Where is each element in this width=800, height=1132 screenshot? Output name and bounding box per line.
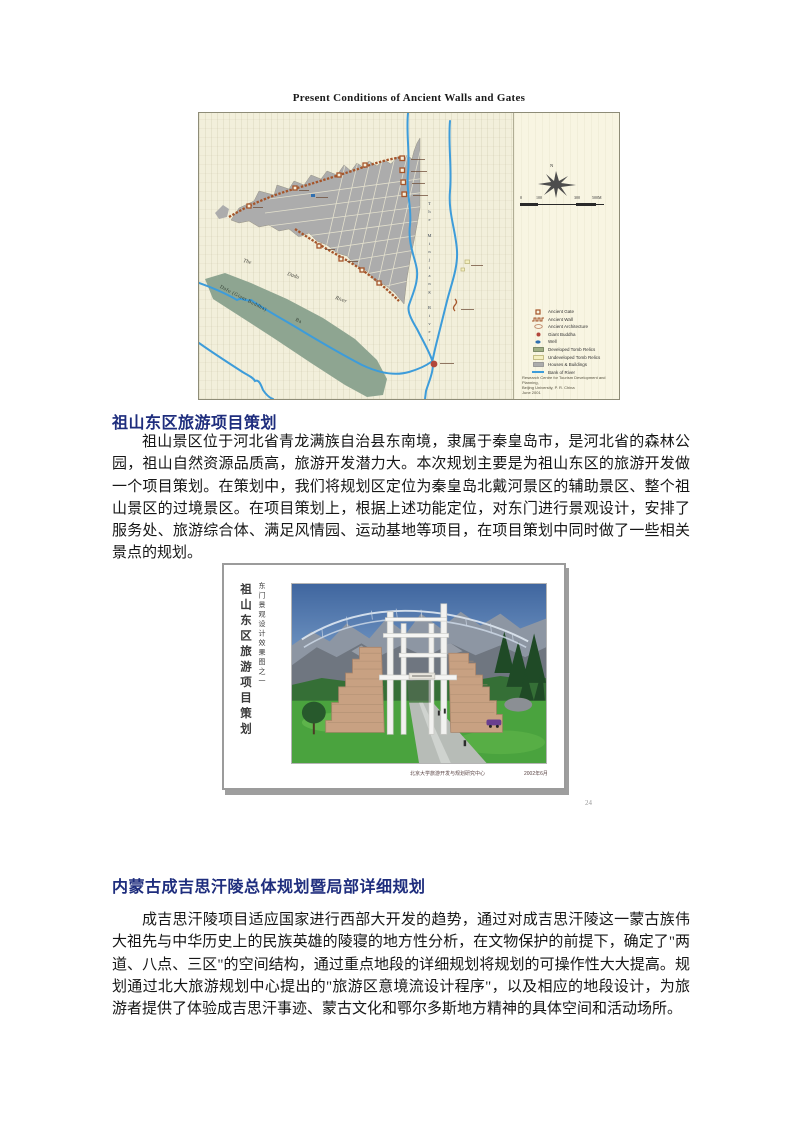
legend-item: Ancient Wall — [532, 317, 618, 322]
buddha-icon — [532, 331, 544, 337]
gate-opening — [407, 680, 431, 703]
map-legend-panel: N 0 100 300 500M Ancient Gat — [513, 113, 619, 399]
scale-bar — [520, 203, 604, 206]
slide-caption: 北京大学旅游开发与规划研究中心 — [410, 770, 485, 777]
tiny-label-mark — [411, 171, 427, 172]
map-drawing — [199, 113, 513, 399]
tiny-label-mark — [440, 363, 454, 364]
slide-side-title-small: 东门景观设计效果图之一 — [257, 582, 267, 687]
developed-tomb-swatch — [532, 346, 544, 352]
slide-caption-date: 2002年6月 — [524, 770, 548, 777]
map-main-area: The Minjiang River The Dadu River Dafo (… — [199, 113, 513, 399]
architecture-icon — [532, 324, 544, 330]
legend-item: Developed Tomb Relics — [532, 347, 618, 352]
scale-bar-ticks: 0 100 300 500M — [520, 195, 606, 201]
slide-page-number: 24 — [585, 799, 592, 807]
giant-buddha-marker — [431, 361, 438, 368]
minjiang-river-label: The Minjiang River — [427, 201, 432, 345]
tiny-label-mark — [325, 249, 335, 250]
gate-rendering-photo — [291, 583, 547, 764]
buildings-swatch — [532, 362, 544, 368]
well-icon — [532, 339, 544, 345]
map-figure-title: Present Conditions of Ancient Walls and … — [198, 92, 620, 104]
document-page: Present Conditions of Ancient Walls and … — [0, 0, 800, 1132]
map-credit: Research Centre for Tourism Development … — [522, 375, 614, 395]
rocks — [504, 698, 532, 712]
legend-item: Giant Buddha — [532, 332, 618, 337]
tiny-label-mark — [413, 195, 428, 196]
tiny-label-mark — [347, 261, 358, 262]
legend-item: Well — [532, 339, 618, 344]
map-legend: Ancient Gate Ancient Wall Ancient Archit… — [532, 309, 618, 375]
tiny-label-mark — [316, 197, 328, 198]
legend-item: Bank of River — [532, 370, 618, 375]
tiny-label-mark — [411, 159, 425, 160]
map-figure: The Minjiang River The Dadu River Dafo (… — [198, 112, 620, 400]
section2-heading: 内蒙古成吉思汗陵总体规划暨局部详细规划 — [112, 873, 690, 897]
legend-item: Undeveloped Tomb Relics — [532, 355, 618, 360]
tiny-label-mark — [299, 190, 309, 191]
tiny-label-mark — [253, 207, 263, 208]
gate-icon — [532, 309, 544, 315]
tiny-label-mark — [412, 183, 425, 184]
legend-item: Ancient Architecture — [532, 324, 618, 329]
compass-north-label: N — [550, 163, 553, 168]
section2-paragraph: 成吉思汗陵项目适应国家进行西部大开发的趋势，通过对成吉思汗陵这一蒙古族伟大祖先与… — [112, 909, 690, 1020]
well-marker — [311, 194, 315, 197]
section1-paragraph: 祖山景区位于河北省青龙满族自治县东南境，隶属于秦皇岛市，是河北省的森林公园，祖山… — [112, 431, 690, 565]
section1-heading: 祖山东区旅游项目策划 — [112, 409, 690, 433]
slide-side-title-large: 祖山东区旅游项目策划 — [237, 583, 253, 738]
tiny-label-mark — [471, 265, 483, 266]
undeveloped-tomb-swatch — [532, 354, 544, 360]
legend-item: Houses & Buildings — [532, 362, 618, 367]
wall-icon — [532, 316, 544, 322]
tiny-label-mark — [461, 309, 474, 310]
slide-figure: 祖山东区旅游项目策划 东门景观设计效果图之一 — [222, 563, 566, 790]
legend-item: Ancient Gate — [532, 309, 618, 314]
